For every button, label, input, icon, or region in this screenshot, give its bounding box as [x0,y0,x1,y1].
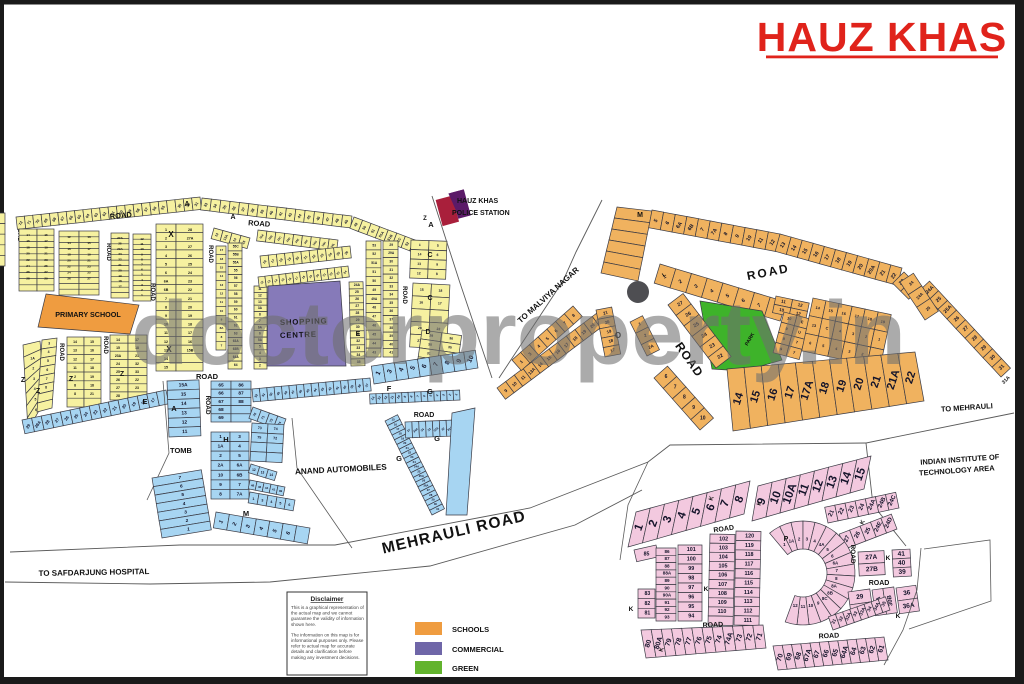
svg-text:92: 92 [664,607,670,612]
svg-text:27: 27 [87,276,91,280]
svg-text:6A: 6A [833,560,839,565]
svg-text:12: 12 [252,468,256,472]
svg-text:12: 12 [73,357,77,361]
svg-text:105: 105 [719,564,728,570]
svg-text:21: 21 [44,252,48,256]
svg-text:17: 17 [90,357,94,361]
svg-text:25A: 25A [419,474,424,478]
svg-text:119: 119 [745,543,754,549]
svg-text:95: 95 [688,604,694,610]
svg-text:19: 19 [44,245,48,249]
svg-text:9: 9 [219,482,222,487]
svg-text:24A: 24A [414,465,419,469]
svg-text:ROAD: ROAD [204,395,211,414]
svg-text:106: 106 [718,573,727,579]
svg-text:102: 102 [719,536,728,542]
svg-text:111: 111 [744,618,752,624]
svg-text:11: 11 [801,604,806,609]
svg-text:1A: 1A [789,538,795,543]
svg-text:28: 28 [188,228,192,232]
svg-text:72: 72 [273,436,277,440]
svg-text:40: 40 [898,560,906,567]
svg-text:113: 113 [744,599,753,605]
svg-text:6B: 6B [237,472,244,477]
svg-text:68: 68 [218,407,224,413]
svg-text:52: 52 [372,252,376,256]
svg-text:informational purposes only. P: informational purposes only. Please [291,638,364,643]
svg-text:100: 100 [687,557,696,563]
svg-text:12: 12 [182,420,188,426]
svg-text:17: 17 [118,285,122,289]
svg-text:26: 26 [422,479,426,483]
svg-text:99: 99 [688,566,694,572]
svg-text:81: 81 [645,611,651,617]
svg-text:SCHOOLS: SCHOOLS [452,625,489,634]
svg-text:11: 11 [73,366,77,370]
svg-text:12: 12 [67,235,71,239]
svg-text:8: 8 [74,392,76,396]
svg-text:36: 36 [903,589,912,597]
svg-text:31: 31 [436,507,440,511]
svg-text:8: 8 [219,491,222,496]
svg-text:23: 23 [410,455,414,459]
svg-text:23: 23 [44,258,48,262]
svg-text:9: 9 [436,263,438,267]
svg-text:8: 8 [683,395,686,401]
svg-text:23A: 23A [115,354,122,358]
svg-text:15: 15 [181,392,187,398]
svg-text:117: 117 [745,562,754,568]
svg-text:P: P [784,536,789,543]
svg-text:17: 17 [87,247,91,251]
svg-text:ROAD: ROAD [207,245,213,263]
svg-text:90A: 90A [663,593,672,598]
svg-text:24: 24 [67,270,71,274]
svg-text:19: 19 [118,274,122,278]
svg-text:F: F [387,384,392,393]
svg-text:11: 11 [182,429,188,435]
svg-text:20: 20 [67,259,71,263]
svg-text:GREEN: GREEN [452,664,479,673]
svg-text:17: 17 [44,239,48,243]
svg-text:28: 28 [26,276,30,280]
svg-text:19: 19 [87,253,91,257]
svg-text:50: 50 [372,279,376,283]
svg-text:90: 90 [664,585,670,590]
svg-text:18: 18 [67,253,71,257]
svg-text:14: 14 [67,241,71,245]
svg-text:31: 31 [389,268,393,272]
svg-text:Z: Z [21,377,26,384]
svg-text:5: 5 [279,502,281,506]
svg-text:39: 39 [279,489,283,493]
svg-text:25: 25 [188,262,192,266]
svg-text:29A: 29A [388,251,395,255]
svg-text:15: 15 [44,233,48,237]
svg-text:88A: 88A [663,571,672,576]
svg-text:93: 93 [664,615,670,620]
svg-text:27A: 27A [865,554,878,562]
svg-text:20: 20 [26,252,30,256]
svg-text:18: 18 [399,432,403,436]
svg-text:5: 5 [238,453,241,458]
svg-text:26: 26 [188,254,192,258]
svg-text:Disclaimer: Disclaimer [311,596,344,603]
svg-text:E: E [142,397,147,406]
svg-text:88: 88 [664,563,670,568]
svg-text:12: 12 [793,603,798,608]
svg-text:20: 20 [118,268,122,272]
svg-text:25: 25 [87,270,91,274]
svg-text:44: 44 [265,486,269,490]
svg-text:19: 19 [401,436,405,440]
svg-text:24: 24 [188,271,192,275]
svg-text:2A: 2A [218,463,225,468]
svg-text:12: 12 [417,271,421,275]
svg-text:110: 110 [718,609,727,615]
svg-text:27: 27 [44,270,48,274]
svg-text:13: 13 [261,471,265,475]
svg-text:15: 15 [87,241,91,245]
svg-text:8: 8 [45,386,47,390]
svg-text:PRIMARY SCHOOL: PRIMARY SCHOOL [55,310,121,319]
svg-text:51A: 51A [371,261,378,265]
svg-text:23: 23 [118,252,122,256]
svg-text:41: 41 [272,488,276,492]
svg-text:6: 6 [436,253,438,257]
svg-text:94: 94 [688,614,694,620]
svg-text:6: 6 [46,368,48,372]
svg-text:24: 24 [26,264,30,268]
svg-text:6: 6 [165,271,167,275]
svg-text:16: 16 [26,239,30,243]
svg-text:107: 107 [718,582,727,588]
svg-text:116: 116 [744,571,753,577]
svg-text:17: 17 [220,248,224,252]
svg-text:25: 25 [118,241,122,245]
svg-text:87: 87 [238,391,244,397]
svg-text:8C: 8C [822,596,828,601]
svg-text:1A: 1A [30,356,35,360]
svg-text:4: 4 [165,254,167,258]
svg-text:19: 19 [90,375,94,379]
svg-text:23: 23 [135,386,139,390]
svg-text:69: 69 [218,415,224,421]
svg-text:27A: 27A [187,237,194,241]
svg-text:20: 20 [403,441,407,445]
svg-text:75: 75 [257,435,261,439]
svg-text:23A: 23A [117,247,123,251]
svg-text:G: G [434,434,440,443]
svg-text:18: 18 [26,245,30,249]
svg-text:The information on this map is: The information on this map is for [291,632,360,637]
svg-text:1: 1 [419,243,421,247]
svg-text:98: 98 [688,576,694,582]
svg-text:96: 96 [688,595,694,601]
svg-text:5: 5 [165,262,167,266]
svg-text:101: 101 [687,547,696,553]
svg-text:M: M [243,509,249,518]
svg-text:109: 109 [718,600,727,606]
svg-text:POLICE STATION: POLICE STATION [452,210,510,217]
svg-text:91: 91 [664,600,670,605]
svg-text:23: 23 [188,280,192,284]
svg-text:97: 97 [688,585,694,591]
svg-text:13: 13 [417,262,421,266]
svg-text:10: 10 [218,472,224,477]
svg-text:guarantee the validity of info: guarantee the validity of information [291,616,364,621]
svg-text:25: 25 [44,264,48,268]
svg-text:9: 9 [692,405,695,411]
svg-text:3: 3 [184,509,187,515]
svg-text:2: 2 [165,237,167,241]
svg-text:A: A [184,201,189,208]
svg-text:51: 51 [372,270,376,274]
svg-text:23: 23 [87,265,91,269]
svg-text:88: 88 [238,399,244,405]
svg-text:73: 73 [258,426,262,430]
svg-text:5: 5 [437,244,439,248]
svg-text:K: K [896,613,901,620]
svg-text:118: 118 [745,552,754,558]
svg-text:104: 104 [719,555,728,561]
svg-text:22: 22 [26,258,30,262]
svg-text:22: 22 [118,258,122,262]
svg-text:2: 2 [219,453,222,458]
svg-text:15: 15 [90,340,94,344]
svg-text:26A: 26A [423,483,428,487]
svg-text:4: 4 [183,501,186,507]
svg-text:7: 7 [674,384,677,390]
svg-text:14: 14 [220,274,224,278]
svg-text:21: 21 [406,446,410,450]
svg-text:30: 30 [434,502,438,506]
svg-text:86: 86 [664,549,670,554]
svg-text:115: 115 [744,580,753,586]
svg-text:15: 15 [220,265,224,269]
svg-text:shown here.: shown here. [291,622,316,627]
svg-text:56: 56 [234,276,238,280]
svg-text:112: 112 [744,609,753,615]
svg-text:21: 21 [90,392,94,396]
svg-text:3: 3 [48,341,50,345]
svg-text:27: 27 [427,488,431,492]
svg-text:4: 4 [270,500,272,504]
svg-text:83: 83 [645,591,651,597]
svg-text:3: 3 [33,377,35,381]
svg-text:18: 18 [90,366,94,370]
svg-text:27A: 27A [117,236,123,240]
svg-text:46: 46 [258,485,262,489]
svg-text:28: 28 [429,493,433,497]
svg-text:2: 2 [32,367,34,371]
svg-text:1: 1 [187,526,190,532]
svg-text:1: 1 [165,228,167,232]
svg-text:114: 114 [744,590,753,596]
svg-text:108: 108 [718,591,727,597]
svg-text:4: 4 [48,350,50,354]
svg-text:10: 10 [808,603,813,608]
svg-text:COMMERCIAL: COMMERCIAL [452,645,504,654]
svg-text:ROAD: ROAD [248,218,271,229]
svg-text:1: 1 [219,434,222,439]
svg-text:7: 7 [178,475,181,481]
svg-text:14: 14 [116,338,120,342]
svg-text:HAUZ KHAS: HAUZ KHAS [757,14,1007,60]
svg-text:TOMB: TOMB [170,446,193,455]
svg-text:8A: 8A [831,584,837,589]
svg-text:48: 48 [251,483,255,487]
svg-text:14: 14 [269,473,273,477]
svg-text:10: 10 [140,247,144,251]
svg-text:55B: 55B [233,253,240,257]
svg-text:8B: 8B [827,590,833,595]
svg-text:18: 18 [118,279,122,283]
svg-text:4: 4 [238,444,241,449]
svg-text:A: A [230,214,235,221]
svg-text:Z: Z [120,371,125,378]
svg-text:ROAD: ROAD [414,412,435,419]
svg-text:K: K [704,586,709,593]
svg-text:This is a graphical representa: This is a graphical representation of [291,605,364,610]
svg-text:14: 14 [73,340,77,344]
svg-text:66: 66 [218,391,224,397]
svg-text:ROAD: ROAD [105,243,111,261]
svg-text:55A: 55A [233,261,240,265]
svg-text:ROAD: ROAD [102,336,108,354]
svg-text:41: 41 [897,551,905,558]
svg-text:26: 26 [116,378,120,382]
svg-text:6: 6 [180,484,183,490]
svg-text:H: H [223,435,228,444]
svg-text:X: X [168,230,174,239]
svg-text:26: 26 [67,276,71,280]
svg-text:C: C [427,252,432,259]
svg-text:4A: 4A [819,542,825,547]
svg-text:27: 27 [188,245,192,249]
svg-text:Z: Z [36,388,41,395]
svg-text:3: 3 [238,434,241,439]
svg-text:6: 6 [288,503,290,507]
svg-text:6A: 6A [164,280,169,284]
svg-text:7: 7 [238,482,241,487]
svg-text:21: 21 [118,263,122,267]
svg-text:6A: 6A [237,463,244,468]
svg-text:14: 14 [181,401,187,407]
svg-text:27B: 27B [866,566,879,574]
svg-text:A: A [428,220,434,229]
svg-text:7: 7 [46,377,48,381]
svg-text:2: 2 [74,375,76,379]
svg-text:doctorproperty.in: doctorproperty.in [131,284,906,384]
svg-text:refer to actual map for a: refer to actual map for accurate [291,644,355,649]
svg-text:29: 29 [44,276,48,280]
svg-text:30: 30 [389,260,393,264]
svg-text:2: 2 [186,518,189,524]
svg-text:24: 24 [413,460,417,464]
svg-text:5: 5 [181,492,184,498]
svg-text:22: 22 [408,451,412,455]
svg-text:3: 3 [261,498,263,502]
svg-text:18: 18 [90,384,94,388]
svg-text:29: 29 [389,243,393,247]
svg-text:ROAD: ROAD [849,544,856,563]
svg-text:ROAD: ROAD [869,580,890,587]
svg-text:85: 85 [644,551,650,557]
svg-text:5: 5 [47,359,49,363]
svg-text:M: M [637,212,643,219]
svg-text:39: 39 [898,569,906,576]
svg-text:24: 24 [116,362,120,366]
svg-text:120: 120 [745,533,754,539]
svg-text:8: 8 [436,272,438,276]
svg-text:making any investment decision: making any investment decisions. [291,655,360,660]
svg-text:10: 10 [700,416,706,422]
svg-text:32: 32 [389,276,393,280]
svg-text:15: 15 [116,346,120,350]
svg-text:12: 12 [140,237,144,241]
svg-text:G: G [396,454,402,463]
svg-text:HAUZ KHAS: HAUZ KHAS [457,198,499,205]
svg-text:15: 15 [392,418,396,422]
svg-text:26: 26 [26,270,30,274]
svg-text:Z: Z [423,216,427,222]
svg-text:55: 55 [234,268,238,272]
svg-text:1: 1 [252,497,254,501]
svg-text:14: 14 [26,233,30,237]
svg-text:13: 13 [73,349,77,353]
svg-text:14: 14 [418,252,422,256]
svg-text:16: 16 [67,247,71,251]
svg-text:16: 16 [394,422,398,426]
svg-text:25: 25 [417,469,421,473]
svg-text:53: 53 [372,243,376,247]
svg-text:21: 21 [87,259,91,263]
svg-text:details and clarification b: details and clarification before [291,649,352,654]
svg-text:13: 13 [87,235,91,239]
svg-text:the actual map and we can: the actual map and we cannot [291,611,353,616]
svg-text:89: 89 [664,578,670,583]
svg-text:8: 8 [74,384,76,388]
svg-text:G: G [427,387,433,396]
svg-text:29: 29 [856,593,865,601]
svg-text:17: 17 [396,427,400,431]
svg-text:1A: 1A [218,444,225,449]
svg-text:A: A [171,404,177,413]
svg-text:K: K [886,555,891,562]
svg-text:3: 3 [165,245,167,249]
svg-text:74: 74 [274,427,278,431]
svg-text:ROAD: ROAD [58,343,64,361]
svg-text:67: 67 [218,399,224,405]
svg-text:Z: Z [69,376,74,383]
svg-text:18: 18 [220,257,224,261]
svg-text:103: 103 [719,545,728,551]
svg-text:13: 13 [181,410,187,416]
svg-text:27: 27 [116,386,120,390]
svg-text:7A: 7A [237,491,244,496]
svg-text:82: 82 [645,601,651,607]
svg-text:55C: 55C [233,245,240,249]
svg-text:5: 5 [34,397,36,401]
svg-text:28: 28 [116,394,120,398]
svg-text:ROAD: ROAD [818,632,839,640]
svg-text:29: 29 [431,498,435,502]
svg-text:22: 22 [67,265,71,269]
svg-text:87: 87 [664,556,670,561]
svg-text:K: K [629,606,634,613]
svg-text:16: 16 [90,349,94,353]
